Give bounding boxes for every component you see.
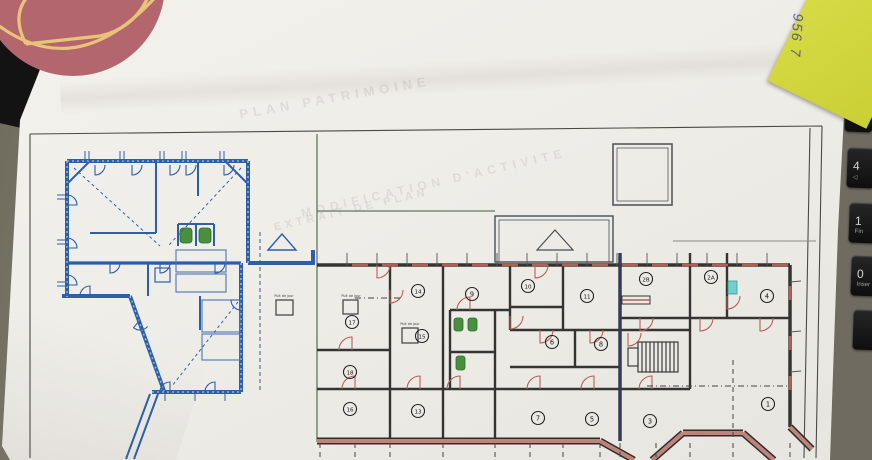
light-well-square: [343, 300, 358, 314]
porch-triangle: [537, 230, 573, 250]
svg-text:2B: 2B: [642, 277, 650, 283]
door-arc: [407, 376, 420, 389]
toilet-fixtures: [454, 318, 477, 370]
room-number-badge: 9: [466, 288, 479, 301]
door-arc: [700, 318, 713, 331]
door-arc: [727, 296, 740, 309]
room-number-badge: 1: [762, 398, 775, 411]
door-arc: [535, 265, 548, 278]
hatched-walls: [317, 427, 812, 460]
door-arc: [186, 165, 196, 175]
room-number-badge: 5: [586, 413, 599, 426]
annex-square: [613, 144, 672, 205]
door-arc: [510, 316, 523, 329]
puit-de-jour-label: Puit de jour: [341, 294, 361, 298]
svg-text:17: 17: [348, 320, 356, 326]
door-arc: [628, 333, 641, 346]
room-number-badge: 16: [344, 403, 357, 416]
keypad-key-1: 1Fin: [848, 203, 872, 244]
svg-text:8: 8: [599, 340, 603, 348]
door-arc: [639, 376, 652, 389]
room-number-badge: 2A: [705, 271, 718, 284]
staircase: [628, 342, 678, 372]
porch-outline: [495, 216, 613, 262]
door-arc: [132, 165, 142, 175]
light-well-square: [276, 300, 293, 315]
svg-text:13: 13: [414, 409, 422, 415]
svg-text:18: 18: [346, 370, 354, 376]
left-floor-plan: [62, 161, 313, 459]
svg-text:10: 10: [524, 284, 532, 290]
room-number-badge: 17: [346, 316, 359, 329]
door-arc: [170, 165, 180, 175]
room-number-badge: 11: [581, 290, 594, 303]
dashed-line: [172, 302, 238, 386]
svg-text:11: 11: [583, 294, 591, 300]
door-arc: [390, 290, 403, 303]
dashed-line: [74, 168, 160, 246]
svg-text:2A: 2A: [707, 275, 715, 281]
door-arc: [224, 165, 234, 175]
door-arcs: [67, 165, 773, 392]
puit-de-jour-label: Puit de jour: [152, 262, 172, 266]
svg-text:9: 9: [470, 290, 474, 298]
desk-photo-scene: 7↖ 4◁ 1Fin 0Inser PLAN PATRIMOINE MODIFI…: [0, 0, 872, 460]
room-number-badge: 6: [546, 336, 559, 349]
door-arc: [527, 376, 540, 389]
svg-text:1: 1: [766, 400, 770, 408]
svg-text:7: 7: [536, 414, 540, 422]
room-number-badge: 14: [412, 285, 425, 298]
door-arc: [339, 337, 352, 350]
right-floor-plan: [317, 253, 812, 460]
door-arc: [760, 318, 773, 331]
svg-text:5: 5: [590, 415, 594, 423]
room-number-badge: 7: [532, 412, 545, 425]
svg-text:3: 3: [648, 417, 652, 425]
room-number-badge: 3: [644, 415, 657, 428]
property-boundary: [317, 134, 816, 442]
door-arc: [377, 265, 390, 278]
keypad-key: [852, 310, 872, 351]
furniture: [176, 250, 240, 360]
monogram-logo: [0, 0, 180, 82]
svg-text:14: 14: [414, 289, 422, 295]
room-number-badge: 4: [761, 290, 774, 303]
puit-de-jour-label: Puit de jour: [274, 294, 294, 298]
room-number-badge: 8: [595, 338, 608, 351]
walkway: [126, 394, 158, 459]
svg-text:15: 15: [418, 334, 426, 340]
room-number-badge: 10: [522, 280, 535, 293]
svg-text:6: 6: [550, 338, 554, 346]
svg-text:16: 16: [346, 407, 354, 413]
puit-de-jour-label: Puit de jour: [400, 322, 420, 326]
room-number-badge: 13: [412, 405, 425, 418]
sticky-note-handwriting: 956 7: [787, 13, 806, 59]
door-arc: [95, 165, 105, 175]
yard-triangle: [268, 234, 296, 250]
room-number-badge: 2B: [640, 273, 653, 286]
sink-fixture: [728, 281, 737, 294]
keypad-key-0: 0Inser: [850, 256, 872, 297]
door-arc: [581, 376, 594, 389]
keypad-key-4: 4◁: [846, 148, 872, 189]
svg-text:4: 4: [765, 292, 769, 300]
room-number-badges: 14910112B2A41715681816137531: [344, 271, 775, 428]
